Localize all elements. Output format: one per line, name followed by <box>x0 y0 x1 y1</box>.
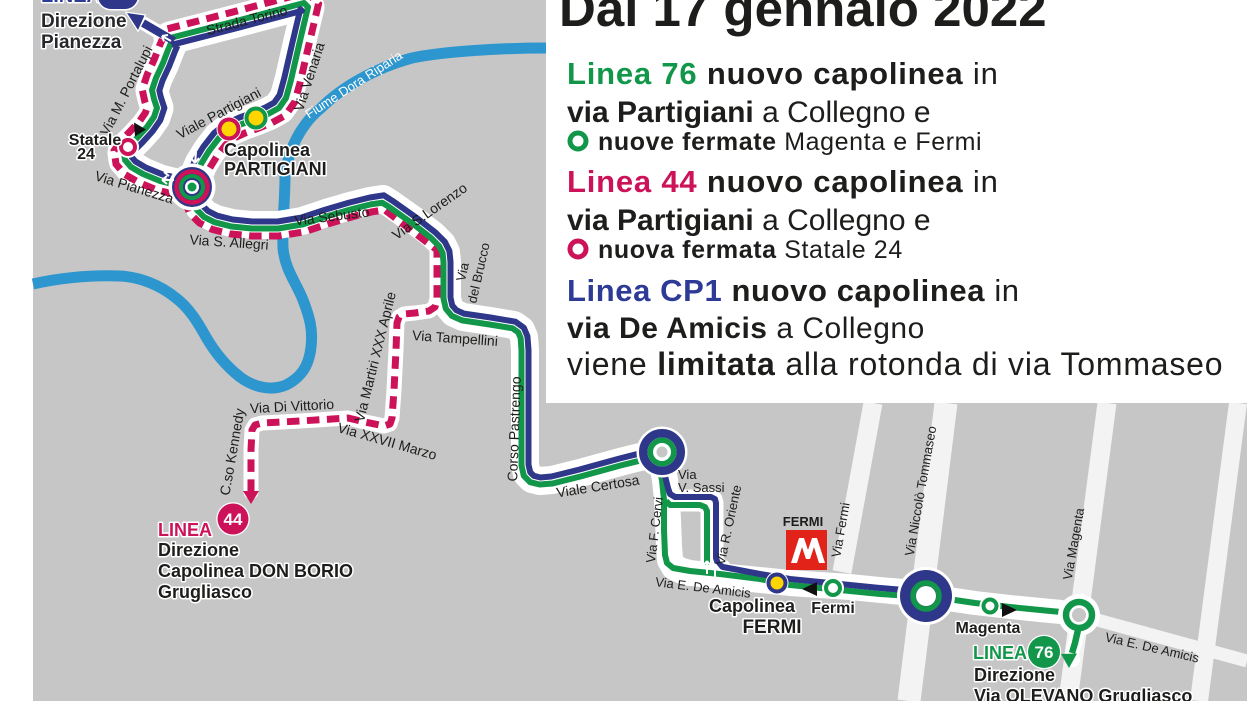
svg-text:Linea CP1 nuovo capolinea in: Linea CP1 nuovo capolinea in <box>567 273 1020 308</box>
svg-text:nuova fermata Statale 24: nuova fermata Statale 24 <box>598 236 903 264</box>
svg-text:via De Amicis a Collegno: via De Amicis a Collegno <box>567 312 925 345</box>
svg-text:via Partigiani a Collegno e: via Partigiani a Collegno e <box>567 96 931 129</box>
svg-text:Capolinea: Capolinea <box>224 140 311 160</box>
svg-text:via Partigiani a Collegno e: via Partigiani a Collegno e <box>567 204 931 237</box>
svg-text:PARTIGIANI: PARTIGIANI <box>224 159 327 179</box>
svg-text:viene limitata alla rotonda di: viene limitata alla rotonda di via Tomma… <box>567 346 1223 382</box>
svg-text:nuove fermate Magenta e Fermi: nuove fermate Magenta e Fermi <box>598 128 982 156</box>
svg-text:76: 76 <box>1035 643 1054 662</box>
svg-text:Pianezza: Pianezza <box>41 32 122 53</box>
svg-text:Linea 44 nuovo capolinea in: Linea 44 nuovo capolinea in <box>567 164 999 199</box>
svg-text:Grugliasco: Grugliasco <box>158 582 252 602</box>
svg-text:Capolinea DON BORIO: Capolinea DON BORIO <box>158 561 353 581</box>
svg-text:V. Sassi: V. Sassi <box>678 480 725 495</box>
svg-text:44: 44 <box>224 510 243 529</box>
svg-text:Dal 17 gennaio 2022: Dal 17 gennaio 2022 <box>559 0 1047 37</box>
svg-text:Via OLEVANO Grugliasco: Via OLEVANO Grugliasco <box>974 686 1192 701</box>
svg-text:Direzione: Direzione <box>974 665 1055 685</box>
svg-text:Magenta: Magenta <box>956 620 1021 637</box>
svg-text:Fermi: Fermi <box>811 600 855 617</box>
svg-text:Capolinea: Capolinea <box>709 596 796 616</box>
svg-text:FERMI: FERMI <box>783 514 823 529</box>
svg-text:LINEA: LINEA <box>41 0 101 7</box>
svg-text:24: 24 <box>77 146 95 163</box>
svg-text:Direzione: Direzione <box>41 11 127 32</box>
svg-text:Linea 76 nuovo capolinea in: Linea 76 nuovo capolinea in <box>567 56 999 91</box>
svg-text:LINEA: LINEA <box>158 520 212 540</box>
svg-text:Direzione: Direzione <box>158 540 239 560</box>
svg-text:FERMI: FERMI <box>742 617 801 638</box>
svg-text:LINEA: LINEA <box>973 643 1027 663</box>
